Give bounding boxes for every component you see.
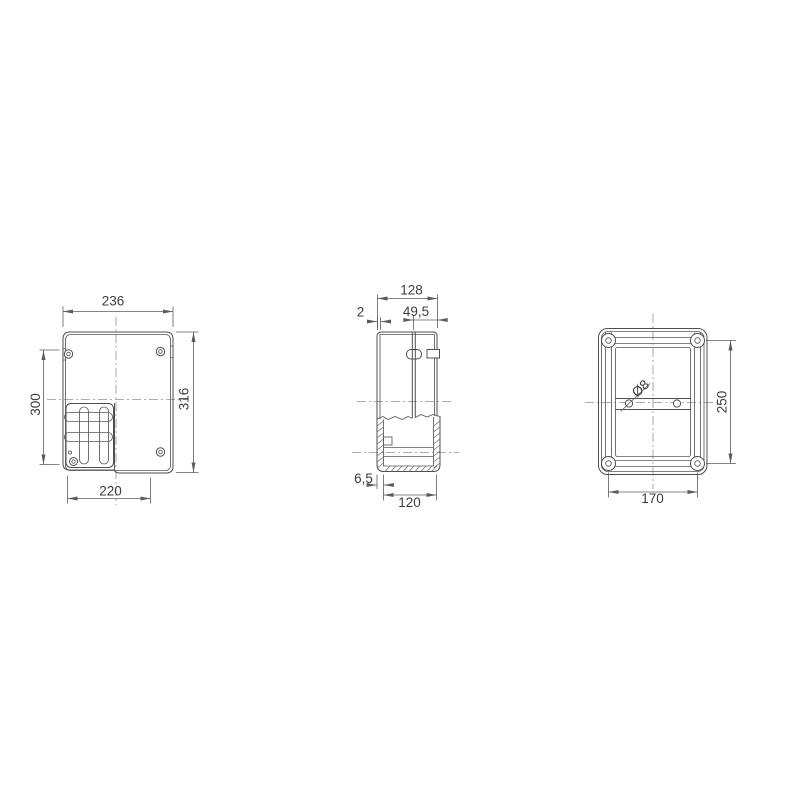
- technical-drawing: 236 316 300 220: [0, 0, 800, 800]
- side-base-outline: [377, 417, 440, 472]
- front-center-lines: [47, 317, 188, 505]
- drawing-canvas: 236 316 300 220: [0, 0, 800, 800]
- dim-label-316: 316: [177, 388, 192, 411]
- back-dimensions: Ø8 250 170: [609, 341, 737, 507]
- dim-label-170: 170: [641, 491, 664, 506]
- break-line: [377, 415, 440, 420]
- dim-label-dia8: Ø8: [629, 377, 652, 400]
- lid-clip-notch: [427, 350, 440, 359]
- dim-label-49-5: 49,5: [403, 304, 429, 319]
- dim-label-2: 2: [357, 305, 365, 320]
- dim-label-300: 300: [28, 393, 43, 416]
- front-view: 236 316 300 220: [28, 294, 199, 506]
- wall-detail: [384, 437, 393, 445]
- side-body-inner-lines: [380, 335, 435, 420]
- lid-clip-tab: [407, 350, 422, 360]
- dim-label-220: 220: [99, 484, 122, 499]
- side-view: 128 2 49,5 6,5 120: [352, 283, 459, 511]
- back-view: Ø8 250 170: [585, 314, 736, 506]
- side-lid-seam: [412, 332, 415, 418]
- side-body-outline: [377, 332, 437, 419]
- knockout-strips: [65, 407, 113, 464]
- base-hatching: [377, 421, 440, 472]
- dim-label-6-5: 6,5: [354, 471, 373, 486]
- front-lid-inner-line: [66, 335, 171, 471]
- dim-label-128: 128: [400, 283, 423, 298]
- dim-label-120: 120: [398, 495, 421, 510]
- side-center-lines: [352, 402, 459, 453]
- dim-label-236: 236: [102, 294, 125, 309]
- dim-label-250: 250: [715, 391, 730, 414]
- side-base-inner: [384, 417, 434, 466]
- side-dimensions: 128 2 49,5 6,5 120: [354, 283, 447, 511]
- terminal-rail: [384, 448, 434, 457]
